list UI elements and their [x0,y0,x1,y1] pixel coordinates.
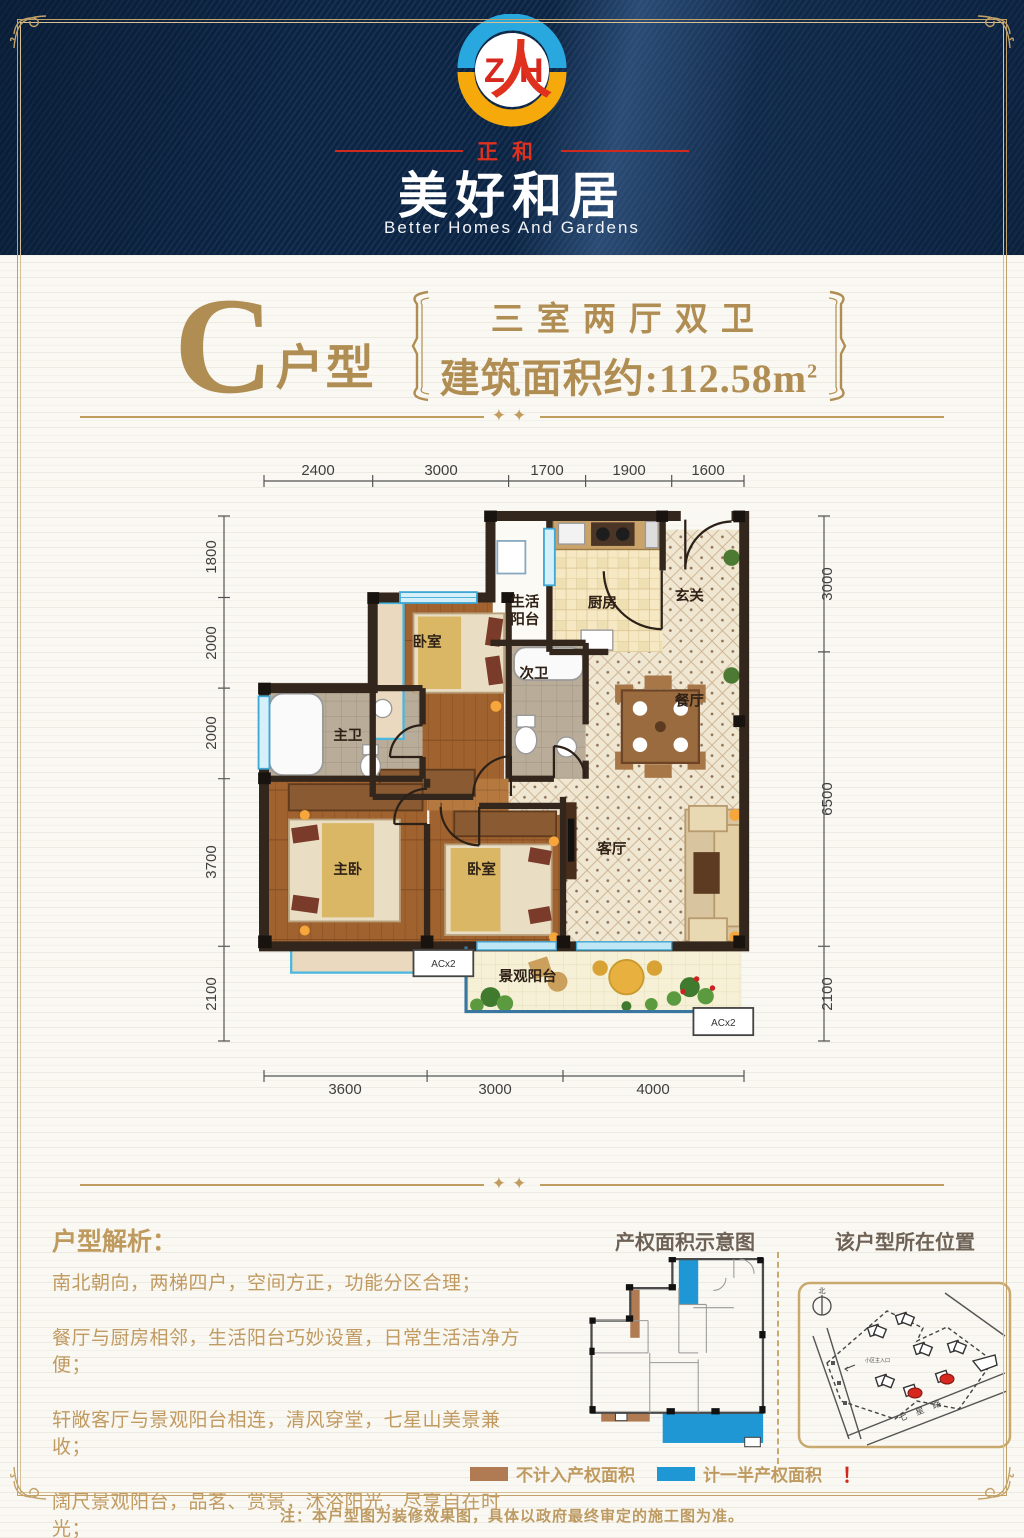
room-label-foyer: 玄关 [675,586,704,604]
dim-left-5: 2100 [203,977,220,1010]
room-label-bedroom-mid: 卧室 [467,860,496,878]
flower-strip-left [374,603,404,739]
legend-not-counted-label: 不计入产权面积 [516,1461,635,1486]
left-bracket-ornament [408,290,430,407]
legend-mark: ！ [842,1459,862,1488]
unit-letter: C [174,296,274,396]
room-label-master-bath: 主卫 [333,726,362,744]
area-legend: 不计入产权面积 计一半产权面积 ！ [470,1459,862,1488]
location-map: 北 七星路 小区主入口 [797,1281,1012,1454]
miniplan-piers [589,1257,765,1414]
excluded-strip-left [630,1290,639,1338]
corner-ornament-icon [976,1465,1016,1505]
floorplan-drawing: 卧室 次卫 厨房 玄关 生活 阳台 餐厅 主卫 主卧 卧室 客厅 景观阳台 AC… [258,510,753,1035]
room-label-dining: 餐厅 [675,691,704,709]
brand-rule-right [561,150,689,152]
site-boundary [827,1311,993,1419]
star-divider-bottom: ✦✦ [80,1174,944,1196]
entry-opening [681,510,732,522]
buildings [868,1312,997,1398]
corner-ornament-icon [8,1465,48,1505]
unit-area-sup: 2 [807,360,818,382]
disclaimer-note: 注：本户型图为装修效果图，具体以政府最终审定的施工图为准。 [0,1505,1024,1526]
property-area-diagram [588,1256,768,1459]
dim-left-2: 2000 [203,626,220,659]
brand-logo: Z H 人 [452,14,572,130]
corner-ornament-icon [976,10,1016,50]
dim-top-5: 1600 [691,462,724,479]
highlighted-building-2 [936,1370,954,1384]
dim-bottom-1: 3600 [328,1081,361,1098]
right-bracket-ornament [828,290,850,407]
plant-foyer-2 [723,667,739,683]
dashed-divider [777,1252,779,1464]
analysis-title: 户型解析： [52,1222,177,1258]
analysis-line: 轩敞客厅与景观阳台相连，清风穿堂，七星山美景兼收； [52,1405,532,1459]
floorplan-area: 2400 3000 1700 1900 1600 1800 2000 2000 … [194,451,854,1111]
legend-half-counted-label: 计一半产权面积 [703,1461,822,1486]
bed-mid [445,836,559,942]
dim-top-3: 1700 [530,462,563,479]
room-label-bedroom-top: 卧室 [413,632,442,650]
room-label-life-balcony-2: 阳台 [510,610,539,628]
dim-top-2: 3000 [424,462,457,479]
miniplan-outline [592,1259,763,1413]
dim-bottom-2: 3000 [478,1081,511,1098]
analysis-line: 南北朝向，两梯四户，空间方正，功能分区合理； [52,1268,532,1295]
dim-top-1: 2400 [301,462,334,479]
header-band: Z H 人 正和 美好和居 Better Homes And Gardens [0,0,1024,255]
room-label-kitchen: 厨房 [588,594,617,612]
miniplan-ac-1 [615,1413,626,1420]
road-label-bottom: 七星路 [897,1394,951,1424]
dim-right-2: 6500 [819,782,836,815]
ac-label-2: ACx2 [711,1018,736,1029]
dim-right-3: 2100 [819,977,836,1010]
floorplan-svg: 2400 3000 1700 1900 1600 1800 2000 2000 … [194,451,854,1111]
dim-left-3: 2000 [203,716,220,749]
highlighted-building-1 [904,1384,922,1398]
plant-foyer-1 [723,550,739,566]
washer [497,541,525,574]
half-area-top [679,1259,698,1304]
dim-bottom-3: 4000 [636,1081,669,1098]
entrance-arrow [845,1365,855,1371]
dim-left-4: 3700 [203,845,220,878]
brand-rule-left [335,150,463,152]
analysis-lines: 南北朝向，两梯四户，空间方正，功能分区合理； 餐厅与厨房相邻，生活阳台巧妙设置，… [52,1268,532,1538]
star-divider-top: ✦✦ [80,406,944,428]
dim-left-1: 1800 [203,540,220,573]
unit-title-block: C 户型 三室两厅双卫 建筑面积约:112.58m2 [0,284,1024,407]
dining-set [615,675,706,777]
brand-logo-icon: Z H 人 [452,14,572,130]
room-label-view-balcony: 景观阳台 [499,967,557,985]
entrance-label: 小区主入口 [865,1357,890,1364]
unit-word: 户型 [276,328,376,398]
legend-brown-swatch [470,1467,508,1481]
star-divider-icon: ✦✦ [80,406,944,426]
star-divider-icon: ✦✦ [80,1174,944,1194]
legend-blue-swatch [657,1467,695,1481]
location-title: 该户型所在位置 [800,1226,1010,1255]
room-label-living: 客厅 [596,839,626,857]
closet-mid-bedroom [454,811,556,836]
property-diagram-title: 产权面积示意图 [585,1226,785,1255]
poster-page: Z H 人 正和 美好和居 Better Homes And Gardens C… [0,0,1024,1538]
miniplan-ac-2 [745,1437,761,1446]
corner-ornament-icon [8,10,48,50]
dim-top-4: 1900 [612,462,645,479]
ac-label-1: ACx2 [431,959,456,970]
north-label: 北 [819,1287,826,1295]
dim-right-1: 3000 [819,567,836,600]
room-label-master-bedroom: 主卧 [333,860,362,878]
unit-area-text: 建筑面积约:112.58m [440,356,807,401]
north-indicator: 北 [813,1287,831,1315]
room-label-second-bath: 次卫 [519,664,548,682]
room-label-life-balcony-1: 生活 [510,593,539,611]
logo-person-glyph: 人 [490,37,552,106]
unit-subtitle: 三室两厅双卫 [440,292,818,340]
brand-sub-name: Better Homes And Gardens [0,218,1024,238]
unit-area: 建筑面积约:112.58m2 [440,346,818,404]
analysis-line: 餐厅与厨房相邻，生活阳台巧妙设置，日常生活洁净方便； [52,1323,532,1377]
